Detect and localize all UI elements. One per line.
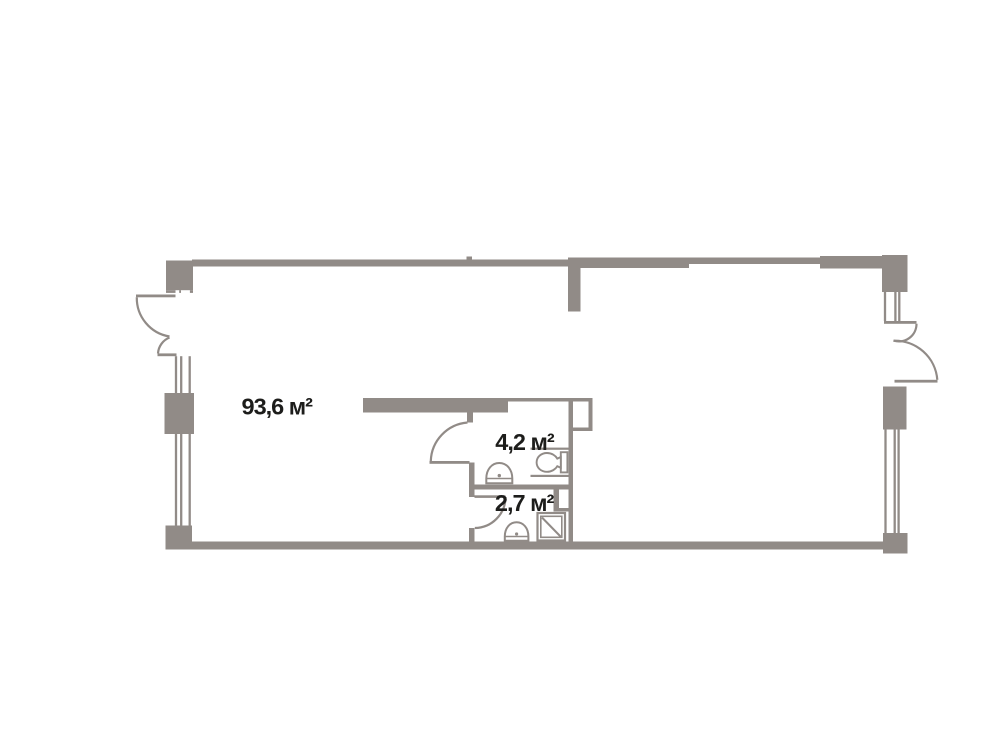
svg-text:2,7 м²: 2,7 м² (495, 490, 555, 516)
svg-text:4,2 м²: 4,2 м² (495, 429, 555, 455)
svg-text:93,6 м²: 93,6 м² (242, 394, 314, 420)
